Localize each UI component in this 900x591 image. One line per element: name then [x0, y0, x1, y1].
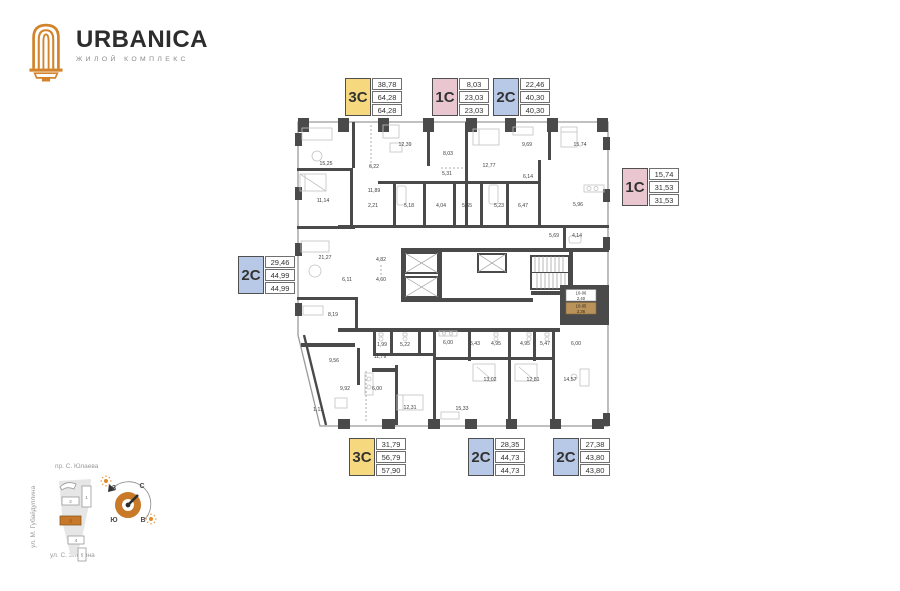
sun-icon-morning — [101, 476, 112, 487]
area-value: 40,30 — [520, 91, 550, 103]
compass-north: С — [139, 483, 144, 490]
room-area: 5,65 — [462, 203, 472, 209]
apartment-card-2c-bottom-mid[interactable]: 2C 28,35 44,73 44,73 — [468, 438, 525, 476]
room-area: 4,60 — [376, 277, 386, 283]
floor-plan[interactable]: 10-06 2,40 10-05 2,36 15,25 12,39 6,22 8… — [293, 113, 615, 435]
apartment-card-2c-left[interactable]: 2C 29,46 44,99 44,99 — [238, 256, 295, 294]
room-area: 5,69 — [549, 233, 559, 239]
apartment-type-badge: 2C — [238, 256, 264, 294]
street-label-left: ул. М. Губайдуллина — [30, 486, 37, 548]
building-number: 4 — [75, 538, 78, 543]
room-area: 4,95 — [520, 341, 530, 347]
room-area: 15,33 — [456, 406, 469, 412]
apartment-type-badge: 3C — [349, 438, 375, 476]
room-area: 5,23 — [494, 203, 504, 209]
compass-west: З — [112, 485, 117, 492]
room-area: 13,02 — [484, 377, 497, 383]
room-area: 15,74 — [574, 142, 587, 148]
area-value: 15,74 — [649, 168, 679, 180]
brand-tagline: ЖИЛОЙ КОМПЛЕКС — [76, 56, 208, 63]
compass-hub — [126, 503, 131, 508]
room-area: 5,18 — [404, 203, 414, 209]
building-number: 2 — [69, 499, 72, 504]
area-value: 56,79 — [376, 451, 406, 463]
room-area: 8,03 — [443, 151, 453, 157]
area-value: 29,46 — [265, 256, 295, 268]
elevator-shafts — [405, 253, 506, 297]
room-area: 5,43 — [470, 341, 480, 347]
area-value: 38,78 — [372, 78, 402, 90]
sun-icon-evening — [146, 514, 157, 525]
area-value: 31,53 — [649, 181, 679, 193]
street-label-top: пр. С. Юлаева — [55, 463, 98, 470]
room-area: 6,47 — [518, 203, 528, 209]
area-value: 44,99 — [265, 269, 295, 281]
apartment-card-2c-top[interactable]: 2C 22,46 40,30 40,30 — [493, 78, 550, 116]
room-area: 12,81 — [527, 377, 540, 383]
apartment-card-1c-right[interactable]: 1C 15,74 31,53 31,53 — [622, 168, 679, 206]
room-area: 6,00 — [571, 341, 581, 347]
apartment-type-badge: 2C — [468, 438, 494, 476]
area-value: 31,53 — [649, 194, 679, 206]
unit-tags[interactable]: 10-06 2,40 10-05 2,36 — [560, 285, 609, 325]
room-area: 9,92 — [340, 386, 350, 392]
unit-area: 2,40 — [577, 296, 586, 301]
apartment-type-badge: 1C — [432, 78, 458, 116]
apartment-card-1c-top[interactable]: 1C 8,03 23,03 23,03 — [432, 78, 489, 116]
area-value: 57,90 — [376, 464, 406, 476]
room-area: 21,27 — [319, 255, 332, 261]
area-value: 22,46 — [520, 78, 550, 90]
area-value: 8,03 — [459, 78, 489, 90]
staircase — [531, 256, 569, 289]
room-area: 6,22 — [369, 164, 379, 170]
apartment-type-badge: 2C — [493, 78, 519, 116]
apartment-type-badge: 3C — [345, 78, 371, 116]
apartment-type-badge: 2C — [553, 438, 579, 476]
room-area: 6,11 — [342, 277, 352, 283]
building-number: 1 — [85, 495, 88, 500]
room-area: 5,31 — [442, 171, 452, 177]
room-area: 1,11 — [313, 407, 323, 413]
compass-east: В — [140, 517, 145, 524]
area-value: 44,73 — [495, 451, 525, 463]
room-area: 1,99 — [377, 342, 387, 348]
area-value: 44,99 — [265, 282, 295, 294]
apartment-card-3c-bottom[interactable]: 3C 31,79 56,79 57,90 — [349, 438, 406, 476]
area-value: 23,03 — [459, 91, 489, 103]
room-area: 11,89 — [368, 188, 381, 194]
room-area: 4,14 — [572, 233, 582, 239]
room-area: 11,14 — [317, 198, 330, 204]
unit-number: 10-05 — [576, 304, 587, 309]
compass: З С Ю В — [95, 470, 165, 540]
room-area: 4,95 — [491, 341, 501, 347]
area-value: 28,35 — [495, 438, 525, 450]
building-number: 5 — [81, 553, 84, 558]
room-area: 14,57 — [564, 377, 577, 383]
compass-south: Ю — [110, 517, 117, 524]
room-area: 9,69 — [522, 142, 532, 148]
area-value: 27,38 — [580, 438, 610, 450]
apartment-type-badge: 1C — [622, 168, 648, 206]
room-area: 8,19 — [328, 312, 338, 318]
area-value: 43,80 — [580, 451, 610, 463]
area-value: 43,80 — [580, 464, 610, 476]
room-area: 11,79 — [374, 354, 387, 360]
room-area: 6,00 — [372, 386, 382, 392]
room-area: 12,39 — [399, 142, 412, 148]
room-area: 5,47 — [540, 341, 550, 347]
room-area: 4,82 — [376, 257, 386, 263]
room-area: 2,21 — [368, 203, 378, 209]
room-area: 12,31 — [404, 405, 417, 411]
apartment-card-2c-bottom-right[interactable]: 2C 27,38 43,80 43,80 — [553, 438, 610, 476]
building-number: 3 — [69, 519, 72, 524]
brand-name: URBANICA — [76, 28, 208, 52]
area-value: 44,73 — [495, 464, 525, 476]
unit-area: 2,36 — [577, 309, 586, 314]
room-area: 6,00 — [443, 340, 453, 346]
area-value: 31,79 — [376, 438, 406, 450]
room-area: 12,77 — [483, 163, 496, 169]
apartment-card-3c-top[interactable]: 3C 38,78 64,28 64,28 — [345, 78, 402, 116]
room-area: 9,56 — [329, 358, 339, 364]
room-area: 4,04 — [436, 203, 446, 209]
room-area: 5,96 — [573, 202, 583, 208]
unit-number: 10-06 — [576, 291, 587, 296]
area-value: 64,28 — [372, 91, 402, 103]
room-area: 5,22 — [400, 342, 410, 348]
room-area: 15,25 — [320, 161, 333, 167]
urbanica-tower-icon — [28, 22, 64, 82]
brand-logo[interactable]: URBANICA ЖИЛОЙ КОМПЛЕКС — [28, 22, 208, 82]
room-area: 6,14 — [523, 174, 533, 180]
